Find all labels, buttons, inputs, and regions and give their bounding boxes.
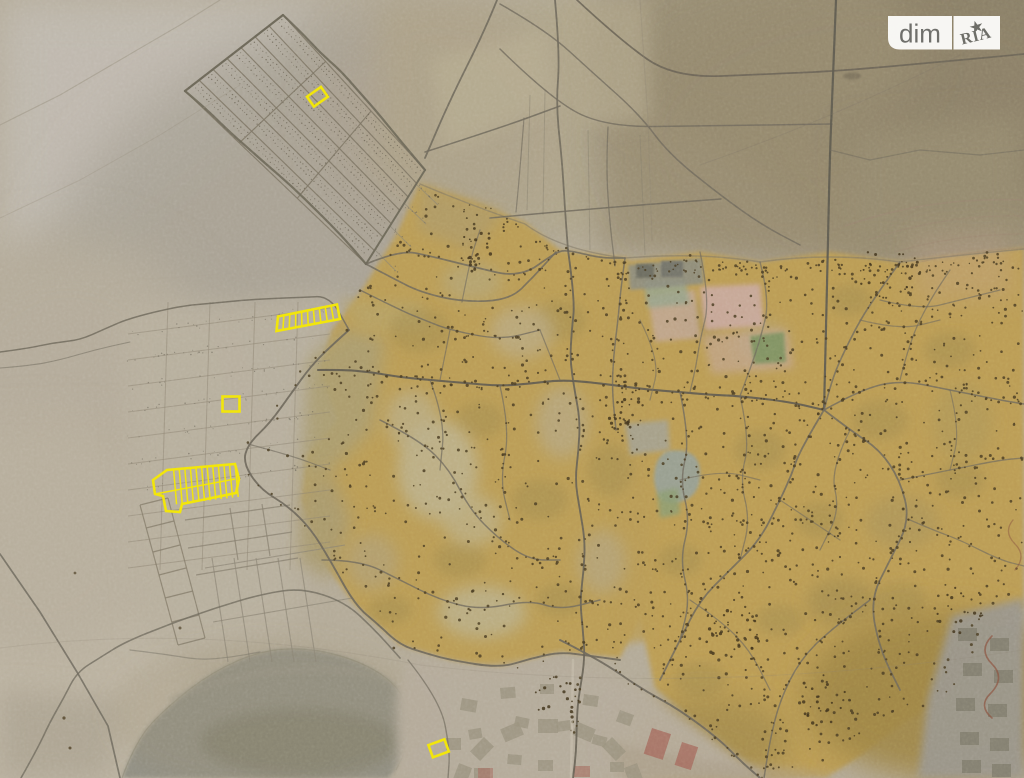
svg-text:dim: dim	[899, 19, 941, 49]
